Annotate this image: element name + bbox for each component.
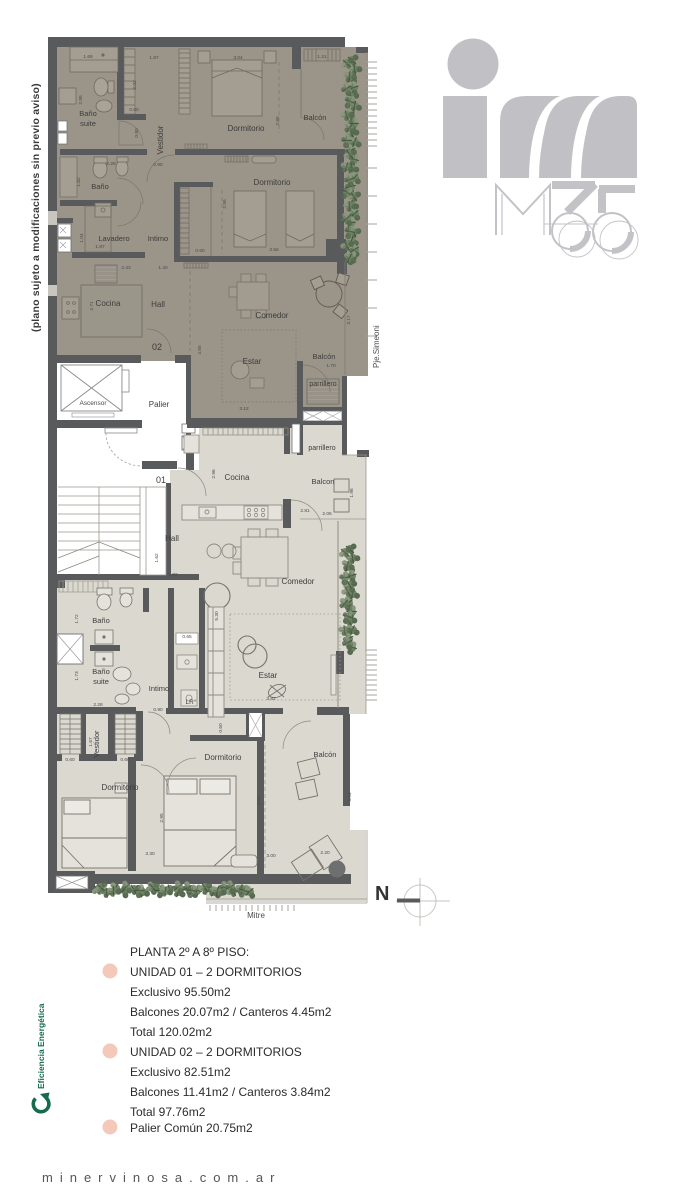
svg-text:suite: suite <box>80 119 96 128</box>
svg-text:1.62: 1.62 <box>154 553 160 563</box>
svg-text:Mitre: Mitre <box>247 911 265 920</box>
svg-text:1.73: 1.73 <box>74 671 80 681</box>
svg-text:1.70: 1.70 <box>326 363 336 369</box>
svg-text:Balcón: Balcón <box>313 352 336 361</box>
svg-text:3.12: 3.12 <box>239 406 249 412</box>
svg-text:1.21: 1.21 <box>317 54 327 60</box>
svg-text:0.60: 0.60 <box>65 757 75 763</box>
svg-text:Exclusivo 95.50m2: Exclusivo 95.50m2 <box>130 985 231 999</box>
svg-text:0.65: 0.65 <box>182 634 192 640</box>
svg-text:Ascensor: Ascensor <box>79 400 107 407</box>
svg-text:0.60: 0.60 <box>129 107 139 113</box>
svg-text:Baño: Baño <box>92 667 110 676</box>
svg-text:Balcones 11.41m2 / Canteros 3.: Balcones 11.41m2 / Canteros 3.84m2 <box>130 1085 331 1099</box>
svg-text:Balcon: Balcon <box>312 477 335 486</box>
svg-text:3.82: 3.82 <box>266 696 276 702</box>
svg-text:1.69: 1.69 <box>83 54 93 60</box>
svg-text:1.40: 1.40 <box>158 265 168 271</box>
svg-text:2.43: 2.43 <box>121 265 131 271</box>
svg-text:2.71: 2.71 <box>89 301 95 311</box>
svg-text:3.30: 3.30 <box>145 851 155 857</box>
svg-text:Lavadero: Lavadero <box>98 234 129 243</box>
svg-text:minervinosa.com.ar: minervinosa.com.ar <box>42 1170 281 1185</box>
svg-text:01: 01 <box>156 475 166 485</box>
svg-text:2.02: 2.02 <box>132 80 138 90</box>
svg-text:0.80: 0.80 <box>134 128 140 138</box>
svg-text:N: N <box>375 883 389 905</box>
svg-text:02: 02 <box>152 342 162 352</box>
svg-text:Total 97.76m2: Total 97.76m2 <box>130 1105 206 1119</box>
svg-text:1.87: 1.87 <box>95 244 105 250</box>
svg-text:Estar: Estar <box>243 357 262 366</box>
svg-text:2.81: 2.81 <box>300 508 310 514</box>
svg-text:Dormitorio: Dormitorio <box>102 783 139 792</box>
svg-text:2.28: 2.28 <box>93 702 103 708</box>
svg-text:Pje.Simeoni: Pje.Simeoni <box>372 325 381 368</box>
svg-text:5.04: 5.04 <box>347 792 353 802</box>
svg-text:LR°: LR° <box>186 698 197 706</box>
svg-text:Balcón: Balcón <box>314 750 337 759</box>
svg-text:2.20: 2.20 <box>320 850 330 856</box>
svg-text:Total 120.02m2: Total 120.02m2 <box>130 1025 212 1039</box>
svg-text:5.30: 5.30 <box>214 611 220 621</box>
svg-text:Vestidor: Vestidor <box>156 125 165 154</box>
svg-text:0.60: 0.60 <box>120 757 130 763</box>
svg-text:3.04: 3.04 <box>233 55 243 61</box>
svg-text:4.55: 4.55 <box>197 345 203 355</box>
svg-text:Palier Común 20.75m2: Palier Común 20.75m2 <box>130 1121 253 1135</box>
svg-text:2.95: 2.95 <box>222 199 228 209</box>
svg-text:Eficiencia Energética: Eficiencia Energética <box>36 1003 46 1089</box>
svg-text:Comedor: Comedor <box>282 577 315 586</box>
svg-text:Baño: Baño <box>91 182 109 191</box>
svg-text:Dormitorio: Dormitorio <box>228 124 265 133</box>
svg-text:3.90: 3.90 <box>256 796 262 806</box>
svg-text:Estar: Estar <box>259 671 278 680</box>
svg-text:suite: suite <box>93 677 109 686</box>
svg-text:2.95: 2.95 <box>78 95 84 105</box>
svg-text:UNIDAD 02 – 2 DORMITORIOS: UNIDAD 02 – 2 DORMITORIOS <box>130 1045 302 1059</box>
svg-text:Comedor: Comedor <box>256 311 289 320</box>
svg-text:1.72: 1.72 <box>74 614 80 624</box>
svg-text:Balcones 20.07m2 / Canteros 4.: Balcones 20.07m2 / Canteros 4.45m2 <box>130 1005 332 1019</box>
svg-text:2.96: 2.96 <box>211 469 217 479</box>
svg-text:1.82: 1.82 <box>168 572 178 578</box>
svg-text:Baño: Baño <box>79 109 97 118</box>
svg-text:3.56: 3.56 <box>269 247 279 253</box>
svg-text:Intimo: Intimo <box>149 684 169 693</box>
svg-text:1.67: 1.67 <box>88 737 94 747</box>
svg-text:Cocina: Cocina <box>96 299 121 308</box>
svg-text:2.06: 2.06 <box>322 511 332 517</box>
svg-text:Balcón: Balcón <box>304 113 327 122</box>
svg-text:2.28: 2.28 <box>106 161 116 167</box>
svg-text:2.95: 2.95 <box>159 813 165 823</box>
svg-text:1.82: 1.82 <box>76 177 82 187</box>
svg-text:parrillero: parrillero <box>308 445 335 452</box>
svg-text:Cocina: Cocina <box>225 473 250 482</box>
svg-text:Exclusivo 82.51m2: Exclusivo 82.51m2 <box>130 1065 231 1079</box>
svg-text:3.00: 3.00 <box>266 853 276 859</box>
svg-text:Hall: Hall <box>165 534 179 543</box>
svg-text:2.95: 2.95 <box>275 116 281 126</box>
svg-text:3.17: 3.17 <box>346 315 352 325</box>
svg-text:parrillero: parrillero <box>309 381 336 388</box>
svg-text:(plano sujeto a modificaciones: (plano sujeto a modificaciones sin previ… <box>30 83 42 332</box>
svg-text:1.96: 1.96 <box>349 488 355 498</box>
svg-text:0.90: 0.90 <box>153 162 163 168</box>
svg-text:0.60: 0.60 <box>218 723 224 733</box>
svg-text:Dormitorio: Dormitorio <box>254 178 291 187</box>
svg-text:0.90: 0.90 <box>153 707 163 713</box>
svg-text:Intimo: Intimo <box>148 234 168 243</box>
svg-text:Dormitorio: Dormitorio <box>205 753 242 762</box>
svg-text:PLANTA 2º A 8º PISO:: PLANTA 2º A 8º PISO: <box>130 945 249 959</box>
svg-text:UNIDAD 01 – 2 DORMITORIOS: UNIDAD 01 – 2 DORMITORIOS <box>130 965 302 979</box>
svg-text:0.60: 0.60 <box>195 248 205 254</box>
svg-text:Baño: Baño <box>92 616 110 625</box>
svg-text:1.04: 1.04 <box>79 233 85 243</box>
svg-text:Hall: Hall <box>151 300 165 309</box>
svg-text:1.87: 1.87 <box>149 55 159 61</box>
svg-text:Palier: Palier <box>149 400 170 409</box>
